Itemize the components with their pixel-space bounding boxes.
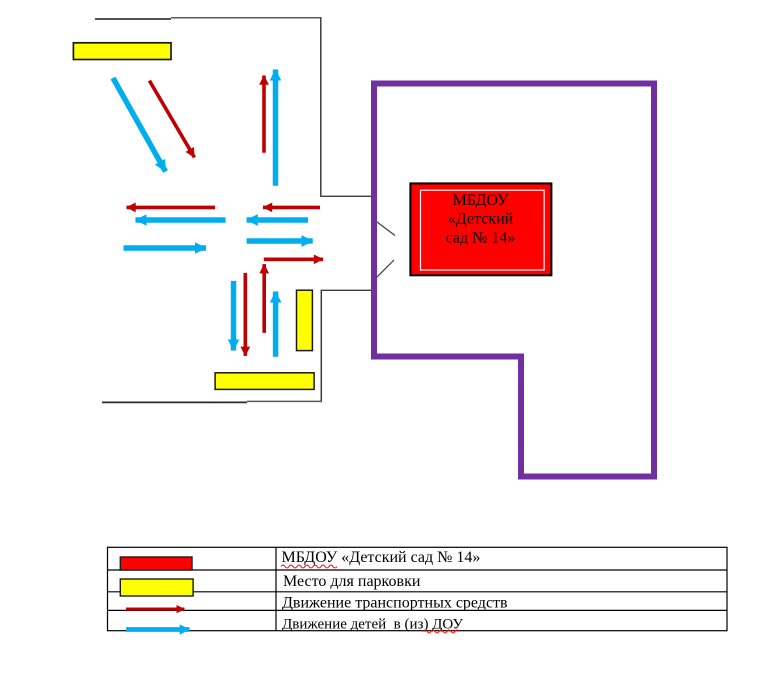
svg-text:Место для парковки: Место для парковки	[283, 573, 421, 590]
svg-text:Движение детей в (из) ДОУ: Движение детей в (из) ДОУ	[282, 616, 463, 632]
svg-text:МБДОУ «Детский сад № 14»: МБДОУ «Детский сад № 14»	[282, 549, 481, 566]
svg-text:«Детский: «Детский	[448, 211, 514, 228]
svg-text:МБДОУ: МБДОУ	[453, 192, 509, 209]
svg-text:Движение транспортных средств: Движение транспортных средств	[282, 595, 508, 612]
svg-text:сад № 14»: сад № 14»	[446, 229, 516, 246]
